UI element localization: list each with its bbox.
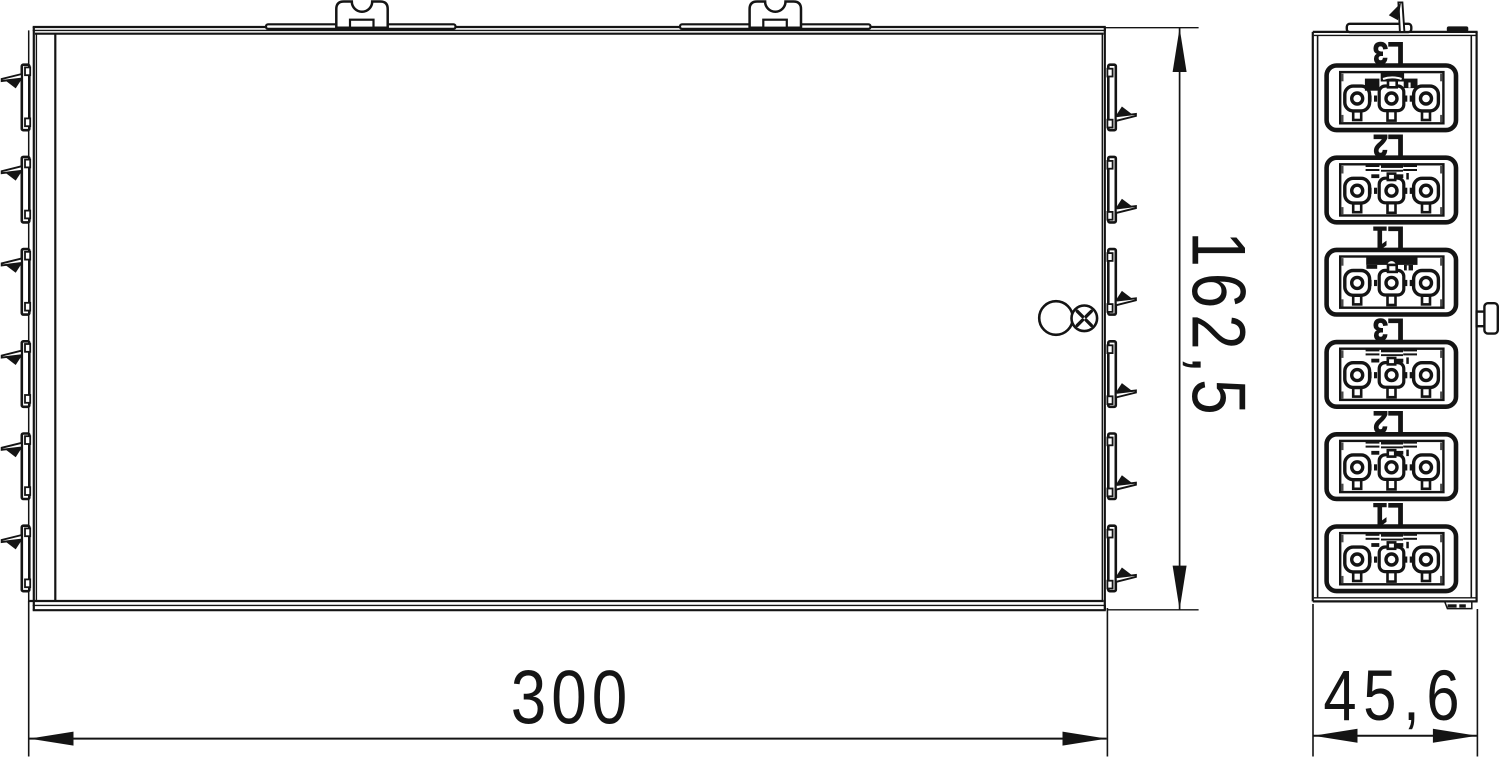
svg-text:300: 300 — [511, 654, 633, 740]
svg-text:45,6: 45,6 — [1323, 656, 1466, 735]
svg-text:162,5: 162,5 — [1176, 231, 1262, 420]
